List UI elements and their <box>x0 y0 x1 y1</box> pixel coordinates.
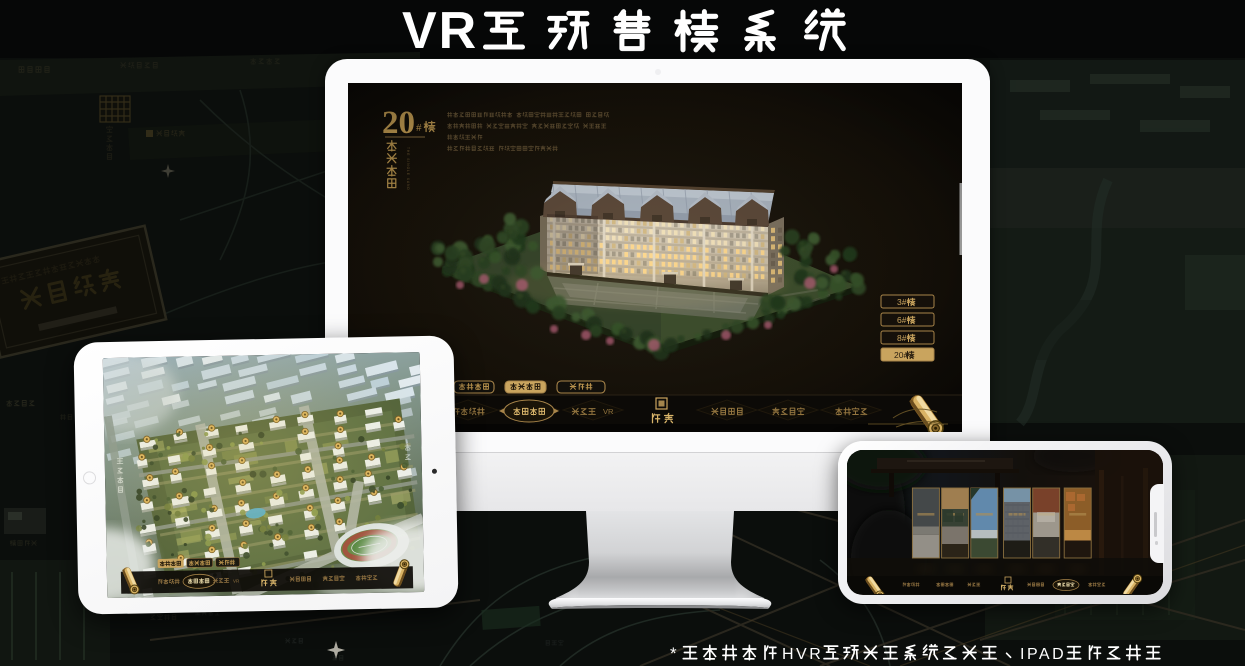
svg-text:3#: 3# <box>897 297 907 307</box>
svg-text:VR: VR <box>233 579 240 584</box>
svg-text:HVR: HVR <box>782 646 823 663</box>
svg-text:IPAD: IPAD <box>1020 646 1066 663</box>
svg-text:6#: 6# <box>897 315 907 325</box>
svg-text:8#: 8# <box>897 333 907 343</box>
svg-text:*: * <box>670 644 677 663</box>
svg-text:VR: VR <box>603 407 614 416</box>
svg-text:VR: VR <box>402 2 478 58</box>
